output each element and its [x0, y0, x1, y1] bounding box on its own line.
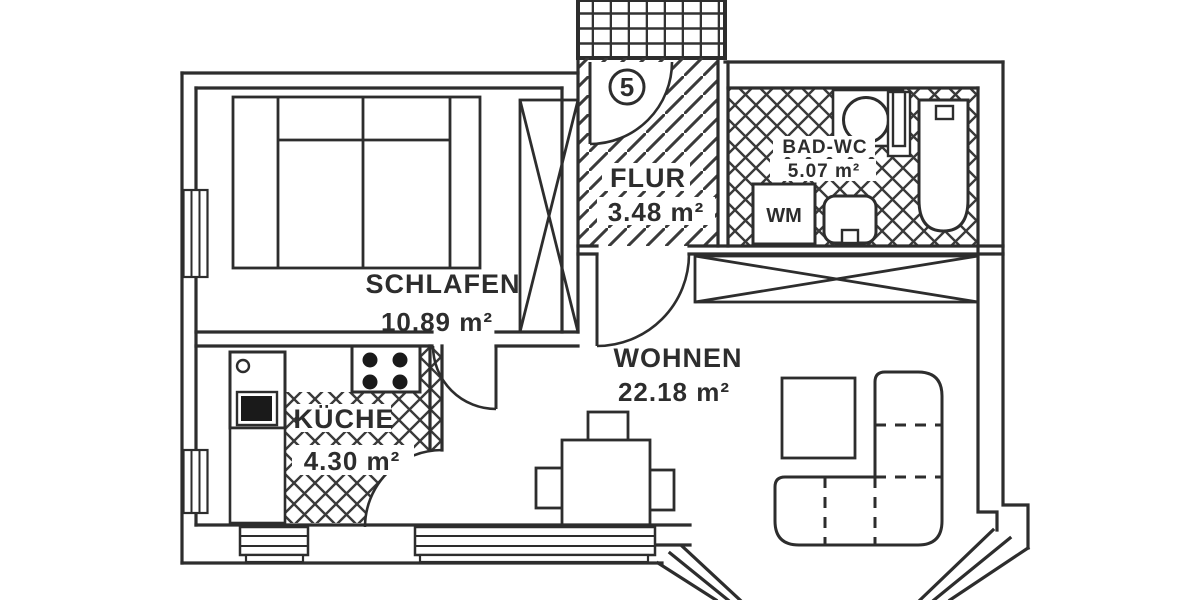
room-label-kueche: KÜCHE: [293, 404, 394, 434]
washing-machine-label: WM: [766, 205, 802, 227]
washing-machine: WM: [753, 184, 815, 244]
window-left-schlafen: [184, 190, 208, 277]
room-area-wohnen: 22.18 m²: [618, 377, 730, 407]
room-bad-wc: WM BAD-WC 5.07 m²: [728, 88, 978, 246]
room-flur: 5 FLUR 3.48 m²: [578, 58, 718, 246]
room-label-schlafen: SCHLAFEN: [366, 269, 521, 299]
wardrobe-wohnen: [695, 256, 978, 302]
window-bottom-wohnen: [415, 527, 655, 562]
room-wohnen: WOHNEN 22.18 m²: [536, 256, 978, 545]
stair-grid: [578, 0, 725, 58]
room-area-flur: 3.48 m²: [608, 197, 705, 227]
unit-number: 5: [620, 72, 634, 102]
window-bottom-kueche: [240, 527, 308, 562]
floor-plan-svg: 5 FLUR 3.48 m² WM: [0, 0, 1200, 600]
room-label-flur: FLUR: [610, 163, 686, 193]
room-schlafen: SCHLAFEN 10.89 m²: [233, 97, 578, 337]
radiator: [888, 92, 910, 156]
room-label-bad: BAD-WC: [782, 137, 867, 158]
wardrobe: [520, 100, 578, 332]
room-area-kueche: 4.30 m²: [304, 446, 401, 476]
kitchen-counter: [230, 428, 285, 523]
coffee-table: [782, 378, 855, 458]
room-kueche: KÜCHE 4.30 m²: [230, 346, 442, 527]
dining-table: [536, 412, 674, 543]
floor-plan-page: 5 FLUR 3.48 m² WM: [0, 0, 1200, 600]
stairwell: [578, 0, 725, 58]
bed: [233, 97, 480, 268]
stove: [352, 346, 420, 392]
door-flur-wohnen: [597, 254, 689, 346]
toilet: [824, 196, 876, 243]
bathtub: [919, 100, 968, 231]
room-label-wohnen: WOHNEN: [614, 343, 743, 373]
kitchen-sink: [230, 352, 285, 523]
bathtub-drain: [936, 106, 953, 119]
window-left-kueche: [184, 450, 208, 513]
room-area-bad: 5.07 m²: [788, 161, 860, 182]
